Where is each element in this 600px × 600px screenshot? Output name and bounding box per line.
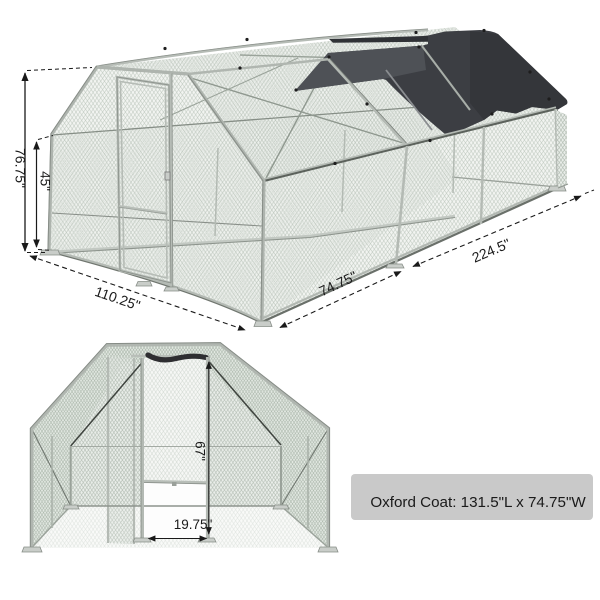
svg-text:45": 45"	[38, 171, 53, 191]
svg-text:76.75": 76.75"	[13, 148, 29, 188]
svg-text:67": 67"	[193, 441, 208, 461]
svg-text:19.75": 19.75"	[174, 517, 213, 532]
svg-text:Oxford Coat: 131.5"L x 74.75"W: Oxford Coat: 131.5"L x 74.75"W	[370, 494, 586, 511]
